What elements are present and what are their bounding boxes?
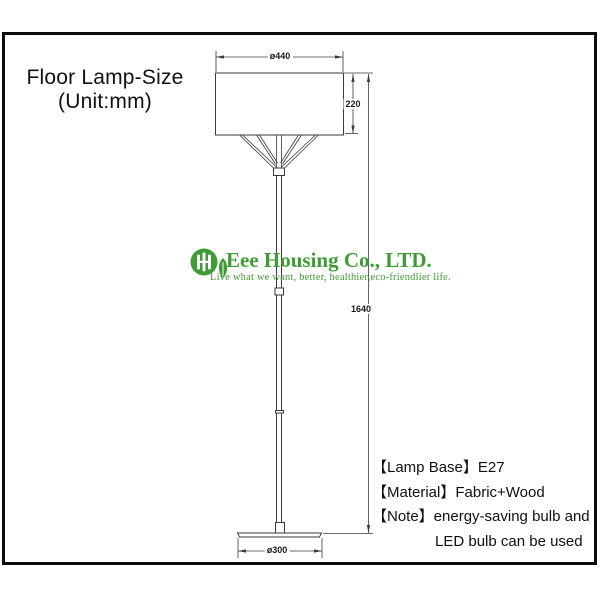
spec-note-line2: LED bulb can be used xyxy=(435,530,590,555)
company-tagline: Live what we want, better, healthier,eco… xyxy=(210,272,451,283)
dim-label-total-height: 1640 xyxy=(349,304,373,314)
spec-note-line1: 【Note】energy-saving bulb and xyxy=(372,505,590,530)
spec-material: 【Material】Fabric+Wood xyxy=(372,481,590,506)
dim-label-shade-diameter: ø440 xyxy=(268,51,293,61)
lamp-base xyxy=(238,533,322,537)
dim-label-shade-height: 220 xyxy=(343,99,362,109)
dim-label-base-diameter: ø300 xyxy=(265,545,290,555)
spec-lamp-base: 【Lamp Base】E27 xyxy=(372,456,590,481)
spec-list: 【Lamp Base】E27 【Material】Fabric+Wood 【No… xyxy=(372,456,590,554)
company-name: Eee Housing Co., LTD. xyxy=(226,248,432,273)
lamp-pole xyxy=(274,168,285,533)
lamp-shade xyxy=(216,73,344,135)
lamp-struts xyxy=(240,135,319,169)
